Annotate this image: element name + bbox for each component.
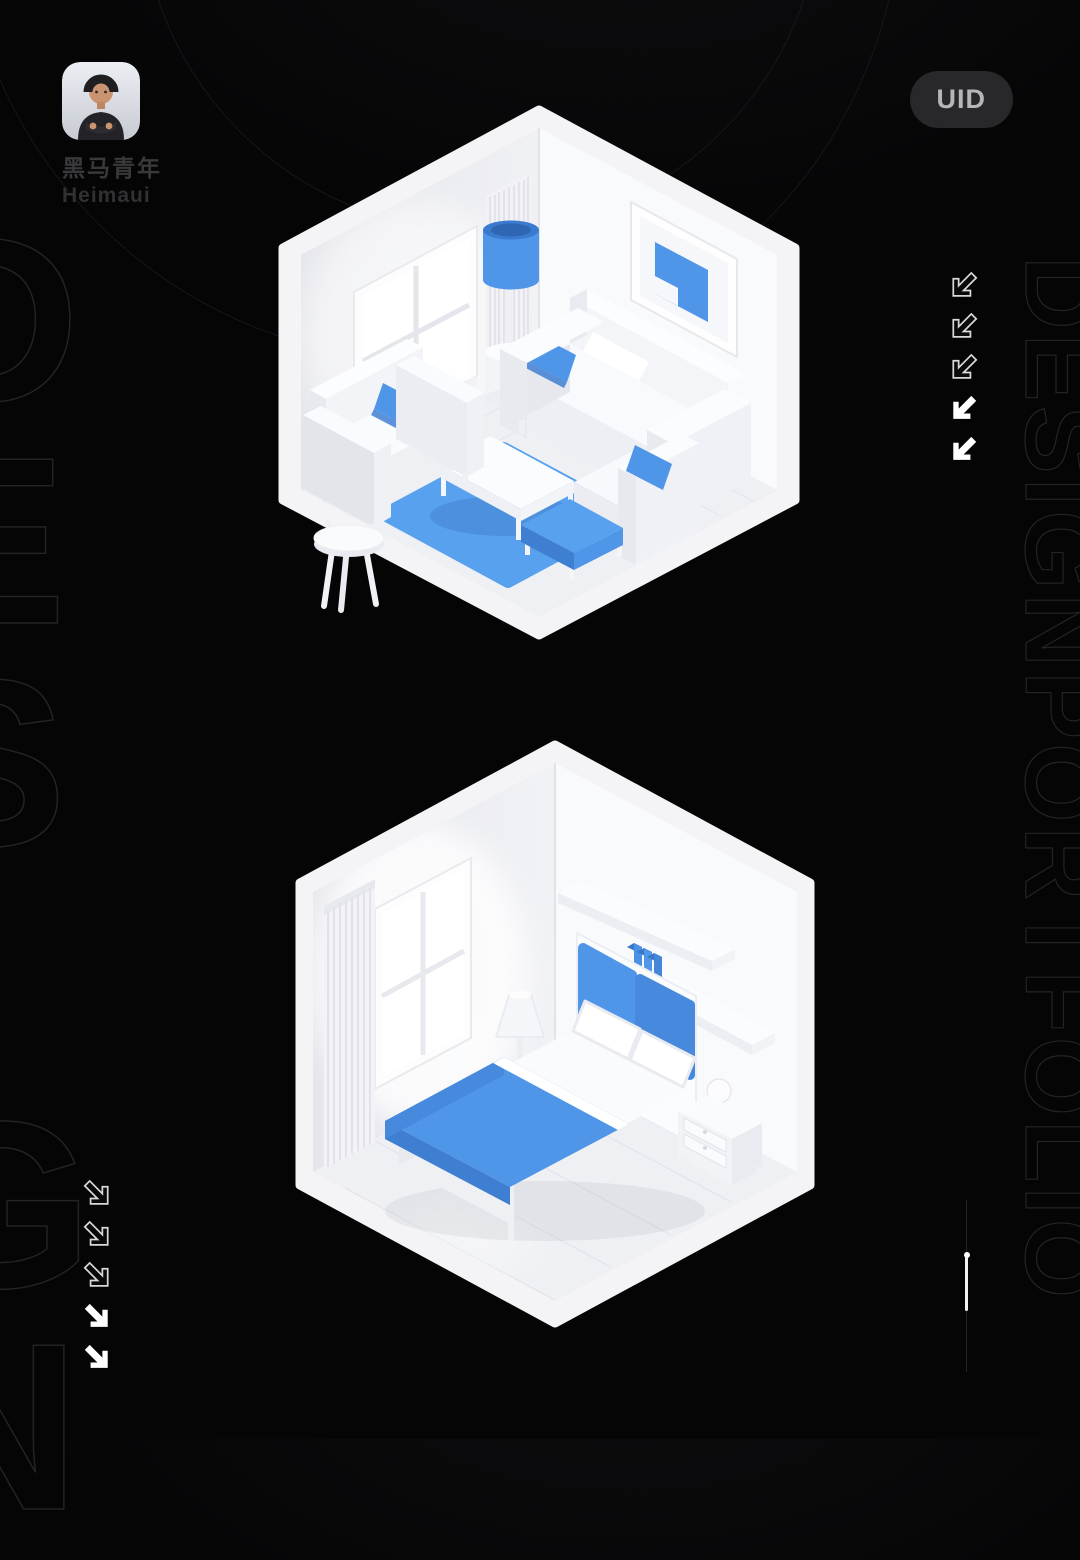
- profile-block: 黑马青年 Heimaui: [62, 62, 162, 208]
- living-room-isometric-illustration: [228, 100, 850, 645]
- arrow-down-right-icon: [82, 1217, 112, 1247]
- giant-outline-text-left: D E S I G N: [0, 210, 93, 1538]
- bedroom-isometric-illustration: [250, 733, 870, 1333]
- scroll-progress: [965, 1257, 968, 1311]
- arrow-group-right: [949, 268, 979, 462]
- arrow-down-left-icon: [949, 309, 979, 339]
- profile-name-en: Heimaui: [62, 184, 162, 208]
- arrow-group-left: [82, 1176, 112, 1370]
- portfolio-cover: D E S I G N DESIGNPORTFOLIO: [0, 0, 1080, 1439]
- arrow-down-right-icon: [82, 1176, 112, 1206]
- scroll-indicator: [965, 1200, 968, 1372]
- scene-bedroom: [250, 733, 870, 1333]
- arrow-down-left-icon: [949, 391, 979, 421]
- scroll-dot: [964, 1252, 970, 1258]
- arrow-down-left-icon: [949, 350, 979, 380]
- uid-badge[interactable]: UID: [910, 71, 1014, 128]
- side-stool: [314, 525, 384, 610]
- giant-outline-text-right: DESIGNPORTFOLIO: [1002, 256, 1080, 1302]
- arrow-down-left-icon: [949, 432, 979, 462]
- arrow-down-right-icon: [82, 1299, 112, 1329]
- arrow-down-left-icon: [949, 268, 979, 298]
- arrow-down-right-icon: [82, 1340, 112, 1370]
- scene-living-room: [228, 100, 850, 645]
- arrow-down-right-icon: [82, 1258, 112, 1288]
- avatar[interactable]: [62, 62, 140, 140]
- memoji-avatar-icon: [62, 62, 140, 140]
- curtain: [324, 879, 375, 1169]
- profile-name-cn: 黑马青年: [62, 149, 162, 183]
